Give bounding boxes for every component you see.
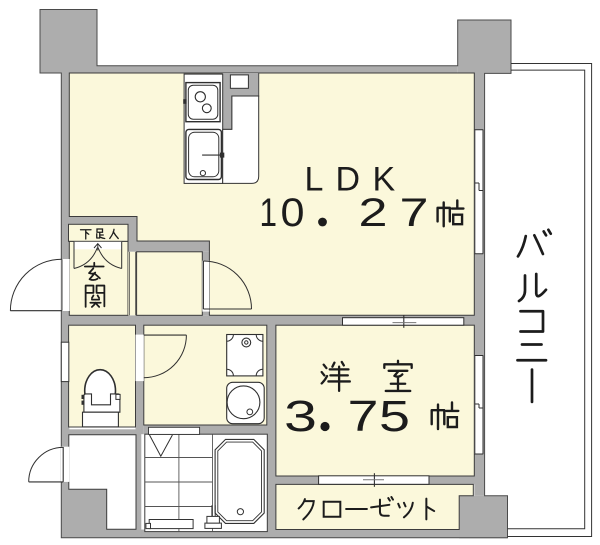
svg-text:5: 5 bbox=[379, 392, 410, 441]
svg-text:0: 0 bbox=[281, 191, 305, 235]
svg-text:L: L bbox=[305, 161, 324, 199]
svg-text:3: 3 bbox=[284, 392, 317, 441]
svg-text:D: D bbox=[336, 161, 361, 199]
svg-text:1: 1 bbox=[260, 191, 278, 235]
svg-text:7: 7 bbox=[400, 191, 429, 235]
svg-text:2: 2 bbox=[359, 191, 388, 235]
svg-text:7: 7 bbox=[348, 392, 379, 441]
